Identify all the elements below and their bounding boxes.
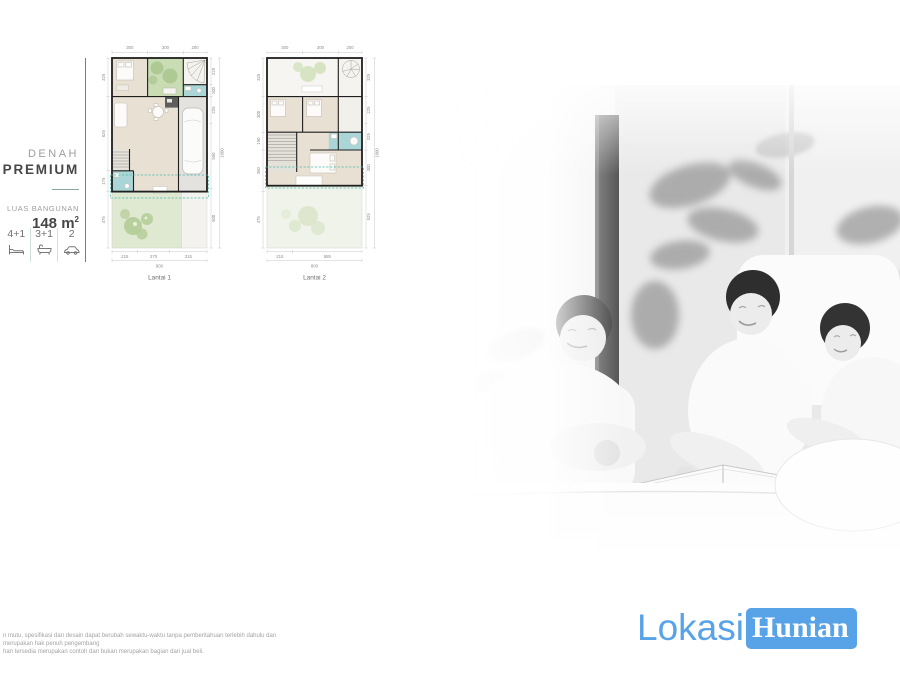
dim-label: 150 — [256, 137, 261, 145]
dim-label: 550 — [211, 152, 216, 160]
dim-label: 300 — [317, 45, 325, 50]
disclaimer-text: n mutu, spesifikasi dan desain dapat ber… — [3, 632, 303, 656]
bedroom-count: 4+1 — [5, 228, 28, 240]
dim-label: 315 — [185, 254, 193, 259]
dim-label: 325 — [366, 73, 371, 81]
dim-total-label: 1600 — [375, 148, 380, 158]
floorplan-lantai-1: 300 300 200 325 625 175 475 225 100 225 … — [95, 36, 240, 284]
dim-label: 325 — [101, 73, 106, 81]
dim-total-label: 800 — [311, 264, 319, 269]
floorplan-lantai-2: 300 300 200 325 300 150 350 475 325 225 … — [250, 36, 395, 284]
spec-bathrooms: 3+1 — [31, 228, 59, 262]
plan-name: PREMIUM — [0, 162, 79, 177]
dim-label: 200 — [347, 45, 355, 50]
bed-icon — [5, 242, 28, 260]
logo-text-lokasi: Lokasi — [637, 607, 744, 649]
spec-bedrooms: 4+1 — [3, 228, 31, 262]
car-icon — [60, 242, 83, 260]
dim-label: 475 — [256, 216, 261, 224]
dim-label: 200 — [192, 45, 200, 50]
family-reading-photo — [455, 85, 900, 562]
dim-label: 300 — [162, 45, 170, 50]
dim-total-label: 1600 — [220, 148, 225, 158]
lokasi-hunian-logo: Lokasi Hunian — [637, 607, 857, 649]
denah-label: DENAH — [0, 148, 79, 160]
dim-label: 625 — [101, 130, 106, 138]
dim-label: 270 — [150, 254, 158, 259]
dim-label: 525 — [366, 213, 371, 221]
plan-name-underline — [52, 189, 79, 190]
logo-text-hunian: Hunian — [746, 608, 857, 649]
plan-spec-block: DENAH PREMIUM LUAS BANGUNAN 148 m2 — [0, 148, 79, 232]
dim-label: 300 — [256, 110, 261, 118]
spec-carports: 2 — [58, 228, 85, 262]
floorplan-caption: Lantai 2 — [303, 275, 326, 282]
dim-label: 215 — [276, 254, 284, 259]
dim-label: 175 — [101, 177, 106, 185]
accent-vertical-line — [85, 58, 86, 262]
dim-label: 225 — [366, 133, 371, 141]
spec-icons-row: 4+1 3+1 — [3, 228, 85, 262]
dim-label: 500 — [211, 214, 216, 222]
disclaimer-line-2: han tersedia merupakan contoh dan bukan … — [3, 648, 303, 656]
carport-count: 2 — [60, 228, 83, 240]
building-area-label: LUAS BANGUNAN — [0, 204, 79, 213]
dim-label: 300 — [126, 45, 134, 50]
bathroom-count: 3+1 — [33, 228, 56, 240]
dim-label: 300 — [281, 45, 289, 50]
dim-label: 215 — [121, 254, 129, 259]
floorplan-caption: Lantai 1 — [148, 275, 171, 282]
dim-label: 325 — [256, 73, 261, 81]
disclaimer-line-1: n mutu, spesifikasi dan desain dapat ber… — [3, 632, 303, 648]
dim-label: 225 — [366, 106, 371, 114]
dim-label: 225 — [211, 106, 216, 114]
dim-label: 300 — [366, 164, 371, 172]
dim-label: 100 — [211, 87, 216, 95]
dim-total-label: 800 — [156, 264, 164, 269]
dim-label: 585 — [324, 254, 332, 259]
dim-label: 475 — [101, 216, 106, 224]
brochure-page: DENAH PREMIUM LUAS BANGUNAN 148 m2 4+1 3… — [0, 0, 900, 675]
bath-icon — [33, 242, 56, 260]
dim-label: 225 — [211, 67, 216, 75]
dim-label: 350 — [256, 167, 261, 175]
